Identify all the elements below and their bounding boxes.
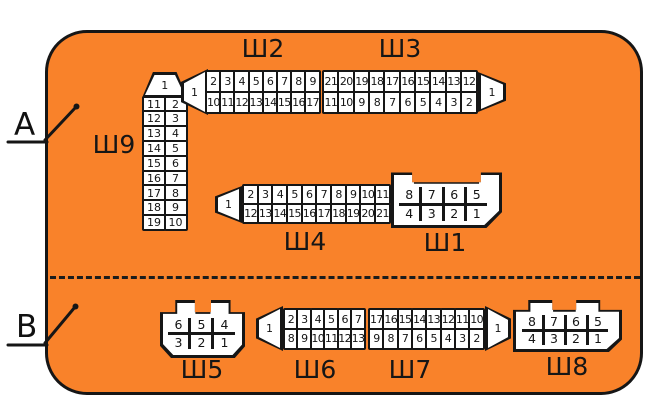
pin-cell: 1 xyxy=(466,204,489,223)
zone-b-pointer-line xyxy=(45,307,75,343)
connector-sh2-bottom-row: 1011121314151617 xyxy=(205,91,321,114)
pin-cell: 19 xyxy=(142,214,166,231)
pin-cell: 13 xyxy=(350,328,366,350)
connector-pinout-diagram: A B Ш9 1 111213141516171819 2345678910 Ш… xyxy=(0,0,670,414)
pin-cell: 1 xyxy=(213,334,236,352)
connector-label-sh1: Ш1 xyxy=(413,230,477,255)
pin-divider xyxy=(522,329,608,332)
pin-divider xyxy=(168,332,236,335)
zone-a-pointer-dot xyxy=(74,104,80,110)
pin-cell: 3 xyxy=(421,204,444,223)
pin-cell: 7 xyxy=(543,313,565,330)
connector-sh3-bottom-row: 111098765432 xyxy=(322,91,478,114)
connector-label-sh4: Ш4 xyxy=(273,229,337,254)
pin-cell: 7 xyxy=(421,185,444,204)
pin-cell: 4 xyxy=(213,316,236,334)
zone-label-a: A xyxy=(14,110,35,141)
connector-label-sh6: Ш6 xyxy=(283,357,347,382)
connector-label-sh3: Ш3 xyxy=(368,36,432,61)
connector-sh5-pin-grid: 654 321 xyxy=(167,316,236,351)
pin-cell: 5 xyxy=(587,313,609,330)
connector-sh9-right-column: 2345678910 xyxy=(164,96,188,232)
pin-cell: 2 xyxy=(468,328,485,350)
pin-cell: 3 xyxy=(167,334,190,352)
pin-cell: 2 xyxy=(460,91,478,114)
pin-cell: 2 xyxy=(565,330,587,347)
pin-cell: 5 xyxy=(190,316,213,334)
pin-cell: 10 xyxy=(164,214,188,231)
connector-sh9-left-column: 111213141516171819 xyxy=(142,96,166,232)
zone-b-pointer-dot xyxy=(73,304,79,310)
pin-cell: 2 xyxy=(443,204,466,223)
connector-sh5-top-row: 654 xyxy=(167,316,236,334)
pin-divider xyxy=(399,203,487,206)
connector-label-sh2: Ш2 xyxy=(231,36,295,61)
pin-cell: 8 xyxy=(398,185,421,204)
connector-label-sh7: Ш7 xyxy=(378,357,442,382)
pin-cell: 4 xyxy=(521,330,543,347)
pin-cell: 17 xyxy=(304,91,321,114)
pin-cell: 21 xyxy=(374,203,391,224)
pin-cell: 8 xyxy=(521,313,543,330)
zone-label-b: B xyxy=(16,312,37,343)
pin-cell: 3 xyxy=(543,330,565,347)
connector-label-sh8: Ш8 xyxy=(535,354,599,379)
pin-cell: 6 xyxy=(443,185,466,204)
pin-cell: 6 xyxy=(565,313,587,330)
connector-sh7-bottom-row: 98765432 xyxy=(368,328,485,350)
pin-cell: 5 xyxy=(466,185,489,204)
connector-sh8-pin-grid: 8765 4321 xyxy=(521,313,609,347)
connector-sh6-bottom-row: 8910111213 xyxy=(283,328,366,350)
connector-sh4-bottom-row: 12131415161718192021 xyxy=(242,203,391,224)
zone-a-pointer-line xyxy=(45,107,76,140)
pin-cell: 6 xyxy=(167,316,190,334)
pin-cell: 4 xyxy=(398,204,421,223)
connector-label-sh5: Ш5 xyxy=(170,357,234,382)
pin-cell: 1 xyxy=(587,330,609,347)
connector-label-sh9: Ш9 xyxy=(82,132,146,157)
connector-sh5-bottom-row: 321 xyxy=(167,334,236,352)
connector-sh1-pin-grid: 8765 4321 xyxy=(398,185,488,223)
pin-cell: 2 xyxy=(190,334,213,352)
